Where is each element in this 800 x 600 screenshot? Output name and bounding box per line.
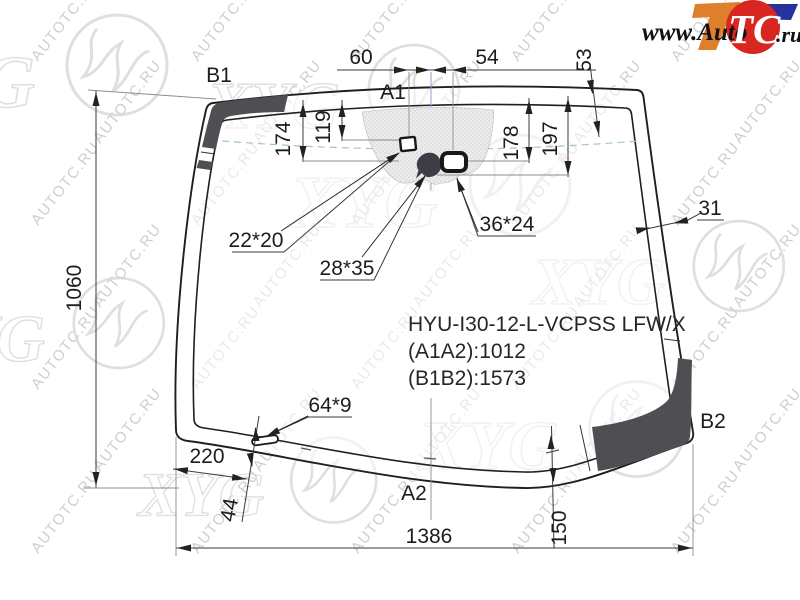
part-length-a: (A1A2):1012	[408, 340, 526, 363]
dim-label-slot: 64*9	[308, 394, 351, 417]
dim-label-53: 53	[573, 48, 596, 71]
dim-label-174: 174	[272, 121, 295, 156]
corner-label-b1: B1	[206, 64, 232, 87]
autotc-diagonal-watermark: AUTOTC.RU	[730, 385, 800, 475]
autotc-logo: www.Auto TC .ru	[642, 0, 800, 54]
part-code: HYU-I30-12-L-VCPSS LFW/X	[408, 313, 686, 336]
autotc-diagonal-watermark: AUTOTC.RU	[90, 57, 165, 147]
windshield-diagram: XYG AUTOTC.RUAUTOTC.RUAUTOTC.RUAUTOTC.RU…	[0, 0, 800, 600]
dim-label-197: 197	[539, 121, 562, 156]
dim-label-178: 178	[500, 125, 523, 160]
dim-label-220: 220	[189, 445, 224, 468]
dim-label-150: 150	[548, 510, 571, 545]
dim-label-mirror-mount: 22*20	[229, 229, 284, 252]
sensor-window-rect	[442, 153, 466, 171]
dim-label-sensor-left: 28*35	[320, 257, 375, 280]
dim-label-sensor-right: 36*24	[480, 213, 535, 236]
dim-label-54: 54	[475, 46, 499, 69]
autotc-diagonal-watermark: AUTOTC.RU	[668, 467, 743, 557]
dim-label-60: 60	[349, 46, 372, 69]
part-length-b: (B1B2):1573	[408, 367, 526, 390]
edge-label-a2: A2	[401, 482, 427, 505]
dim-label-44: 44	[216, 496, 243, 523]
autotc-diagonal-watermark: AUTOTC.RU	[730, 57, 800, 147]
dim-label-1386: 1386	[406, 525, 453, 548]
mirror-mount-square	[400, 137, 416, 151]
dim-label-1060: 1060	[63, 265, 86, 312]
logo-tc: TC	[728, 6, 781, 52]
edge-label-a1: A1	[380, 81, 406, 104]
logo-ru: .ru	[776, 22, 800, 47]
autotc-diagonal-watermark: AUTOTC.RU	[508, 0, 583, 64]
dim-label-119: 119	[312, 110, 335, 143]
dim-label-31: 31	[698, 197, 721, 220]
autotc-diagonal-watermark: AUTOTC.RU	[188, 0, 263, 64]
autotc-diagonal-watermark: AUTOTC.RU	[28, 467, 103, 557]
corner-label-b2: B2	[700, 410, 726, 433]
autotc-diagonal-watermark: AUTOTC.RU	[28, 139, 103, 229]
